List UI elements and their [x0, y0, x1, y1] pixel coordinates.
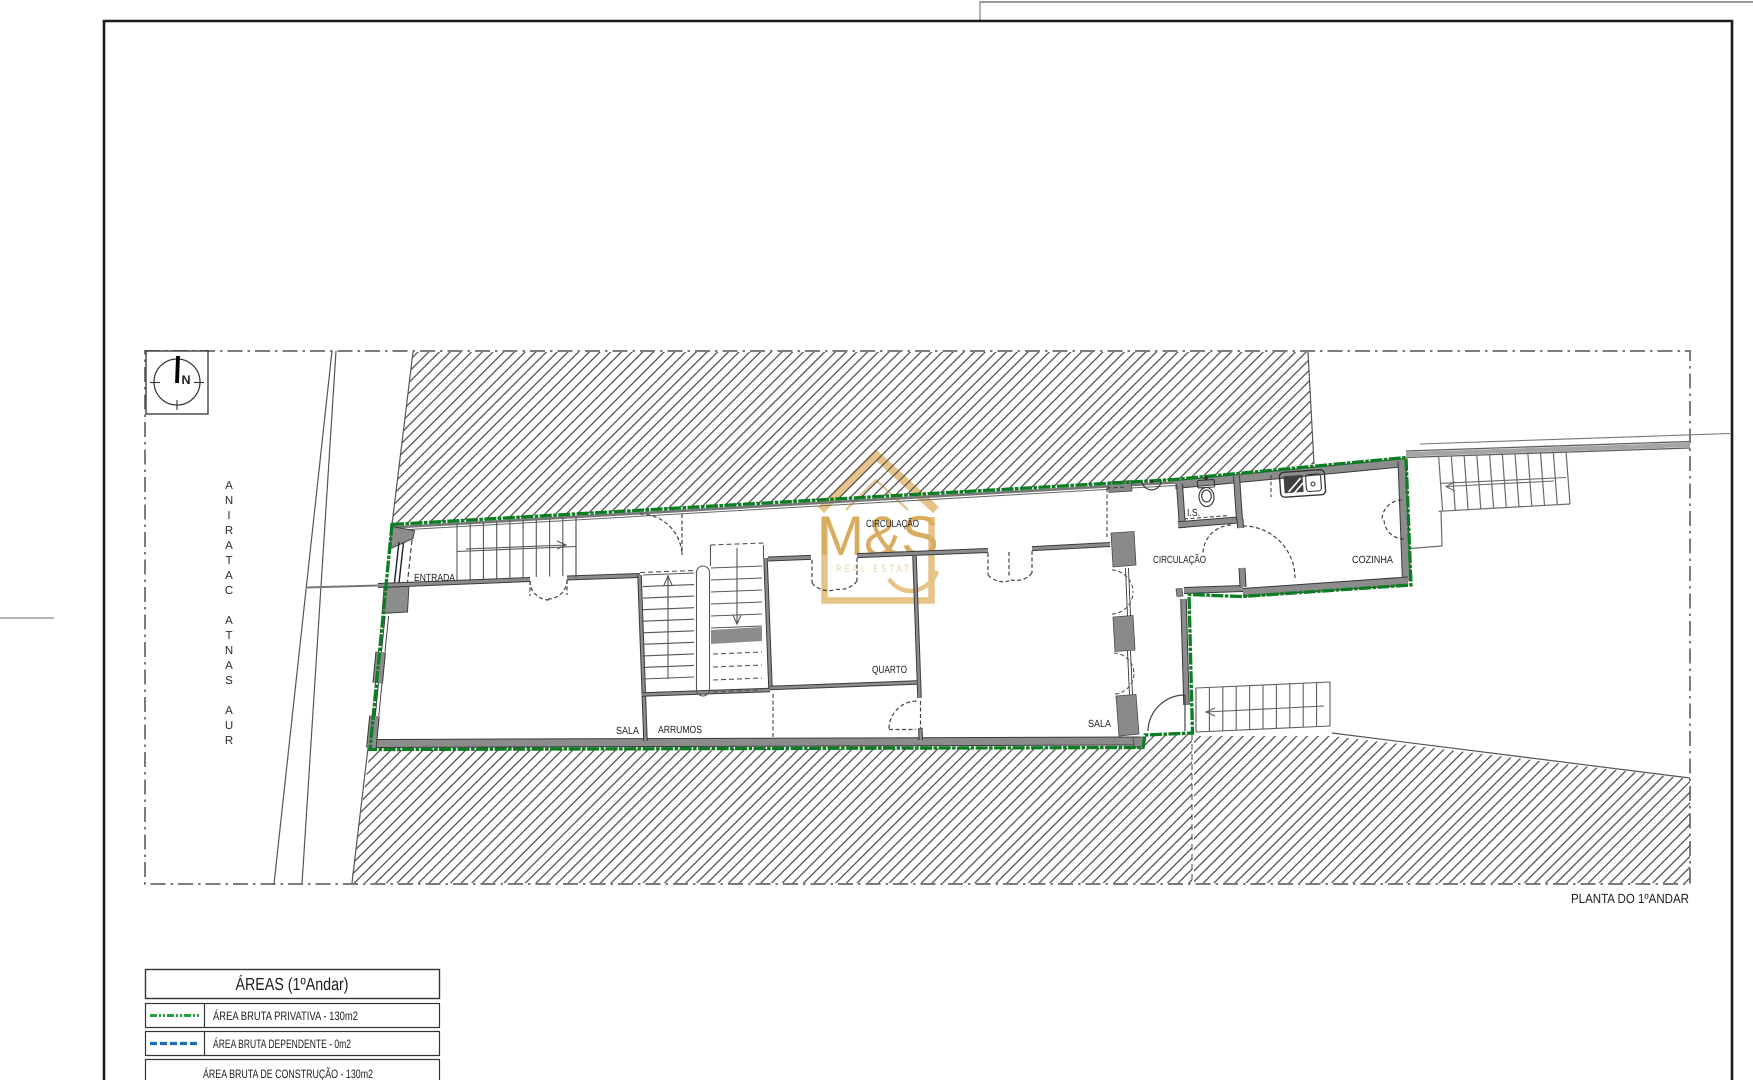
- svg-text:QUARTO: QUARTO: [872, 665, 907, 676]
- svg-text:N: N: [182, 373, 191, 387]
- svg-text:I: I: [227, 510, 230, 522]
- svg-text:A: A: [225, 540, 233, 552]
- svg-text:CIRCULAÇÃO: CIRCULAÇÃO: [866, 517, 919, 530]
- svg-text:ARRUMOS: ARRUMOS: [658, 725, 702, 736]
- svg-text:REAL ESTATE: REAL ESTATE: [836, 563, 920, 575]
- svg-text:A: A: [225, 660, 233, 672]
- svg-text:SALA: SALA: [616, 726, 639, 737]
- svg-text:N: N: [225, 495, 233, 507]
- svg-text:R: R: [225, 525, 233, 537]
- svg-text:A: A: [225, 615, 233, 627]
- svg-text:ÁREA BRUTA DEPENDENTE - 0m2: ÁREA BRUTA DEPENDENTE - 0m2: [213, 1037, 351, 1051]
- svg-text:C: C: [225, 585, 233, 597]
- svg-text:SALA: SALA: [1088, 719, 1111, 730]
- svg-text:COZINHA: COZINHA: [1352, 555, 1393, 566]
- svg-text:ÁREA BRUTA DE CONSTRUÇÃO - 130: ÁREA BRUTA DE CONSTRUÇÃO - 130m2: [203, 1067, 373, 1080]
- svg-text:T: T: [225, 630, 232, 642]
- svg-text:S: S: [225, 675, 233, 687]
- svg-text:ENTRADA: ENTRADA: [414, 573, 455, 584]
- svg-text:PLANTA DO 1ºANDAR: PLANTA DO 1ºANDAR: [1571, 891, 1689, 906]
- svg-text:A: A: [225, 480, 233, 492]
- svg-text:U: U: [225, 720, 233, 732]
- svg-text:ÁREA BRUTA PRIVATIVA - 130m2: ÁREA BRUTA PRIVATIVA - 130m2: [213, 1009, 358, 1023]
- svg-text:N: N: [225, 645, 233, 657]
- svg-text:M&S: M&S: [817, 504, 938, 567]
- svg-text:A: A: [225, 570, 233, 582]
- svg-text:A: A: [225, 705, 233, 717]
- svg-text:ÁREAS (1ºAndar): ÁREAS (1ºAndar): [236, 974, 349, 994]
- svg-text:T: T: [225, 555, 232, 567]
- svg-text:R: R: [225, 735, 233, 747]
- svg-text:I.S.: I.S.: [1187, 508, 1200, 519]
- svg-text:CIRCULAÇÃO: CIRCULAÇÃO: [1153, 553, 1206, 566]
